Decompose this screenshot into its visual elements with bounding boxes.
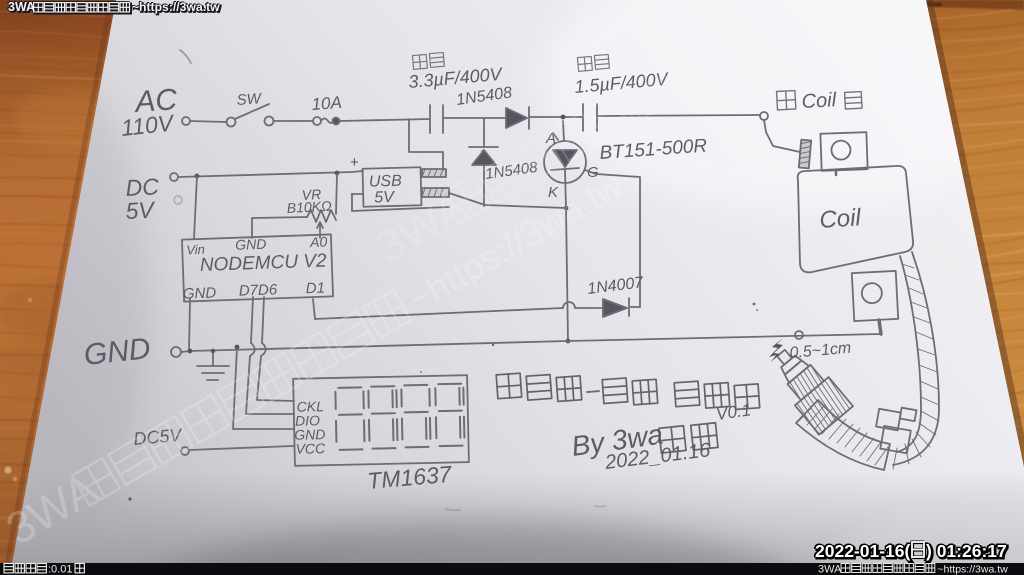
svg-text:2022-01-16(: 2022-01-16( [815,541,911,561]
svg-text:B10KΩ: B10KΩ [286,198,332,216]
svg-text:USB: USB [369,173,403,191]
svg-text:) 01:26:17: ) 01:26:17 [926,541,1007,561]
svg-text:NODEMCU V2: NODEMCU V2 [200,251,328,276]
svg-text:GND: GND [82,332,152,372]
svg-text:VCC: VCC [295,440,326,457]
svg-text:D7D6: D7D6 [239,281,279,299]
svg-text:D1: D1 [305,280,325,298]
svg-text:SW: SW [236,90,263,109]
svg-text:~https://3wa.tw: ~https://3wa.tw [132,0,220,14]
svg-text:5V: 5V [374,189,395,207]
svg-text:~https://3wa.tw: ~https://3wa.tw [937,564,1008,575]
svg-text:A0: A0 [309,234,328,251]
svg-text:5V: 5V [125,196,157,224]
svg-text:GND: GND [235,236,267,253]
svg-text:Coil: Coil [819,204,863,234]
svg-text:3WA: 3WA [818,564,842,575]
svg-text:GND: GND [183,284,217,302]
svg-text:10A: 10A [311,93,343,114]
svg-text:+: + [350,154,359,171]
svg-text:Coil: Coil [801,89,837,113]
svg-text::0.01: :0.01 [48,564,72,575]
svg-text:3WA: 3WA [8,0,35,14]
